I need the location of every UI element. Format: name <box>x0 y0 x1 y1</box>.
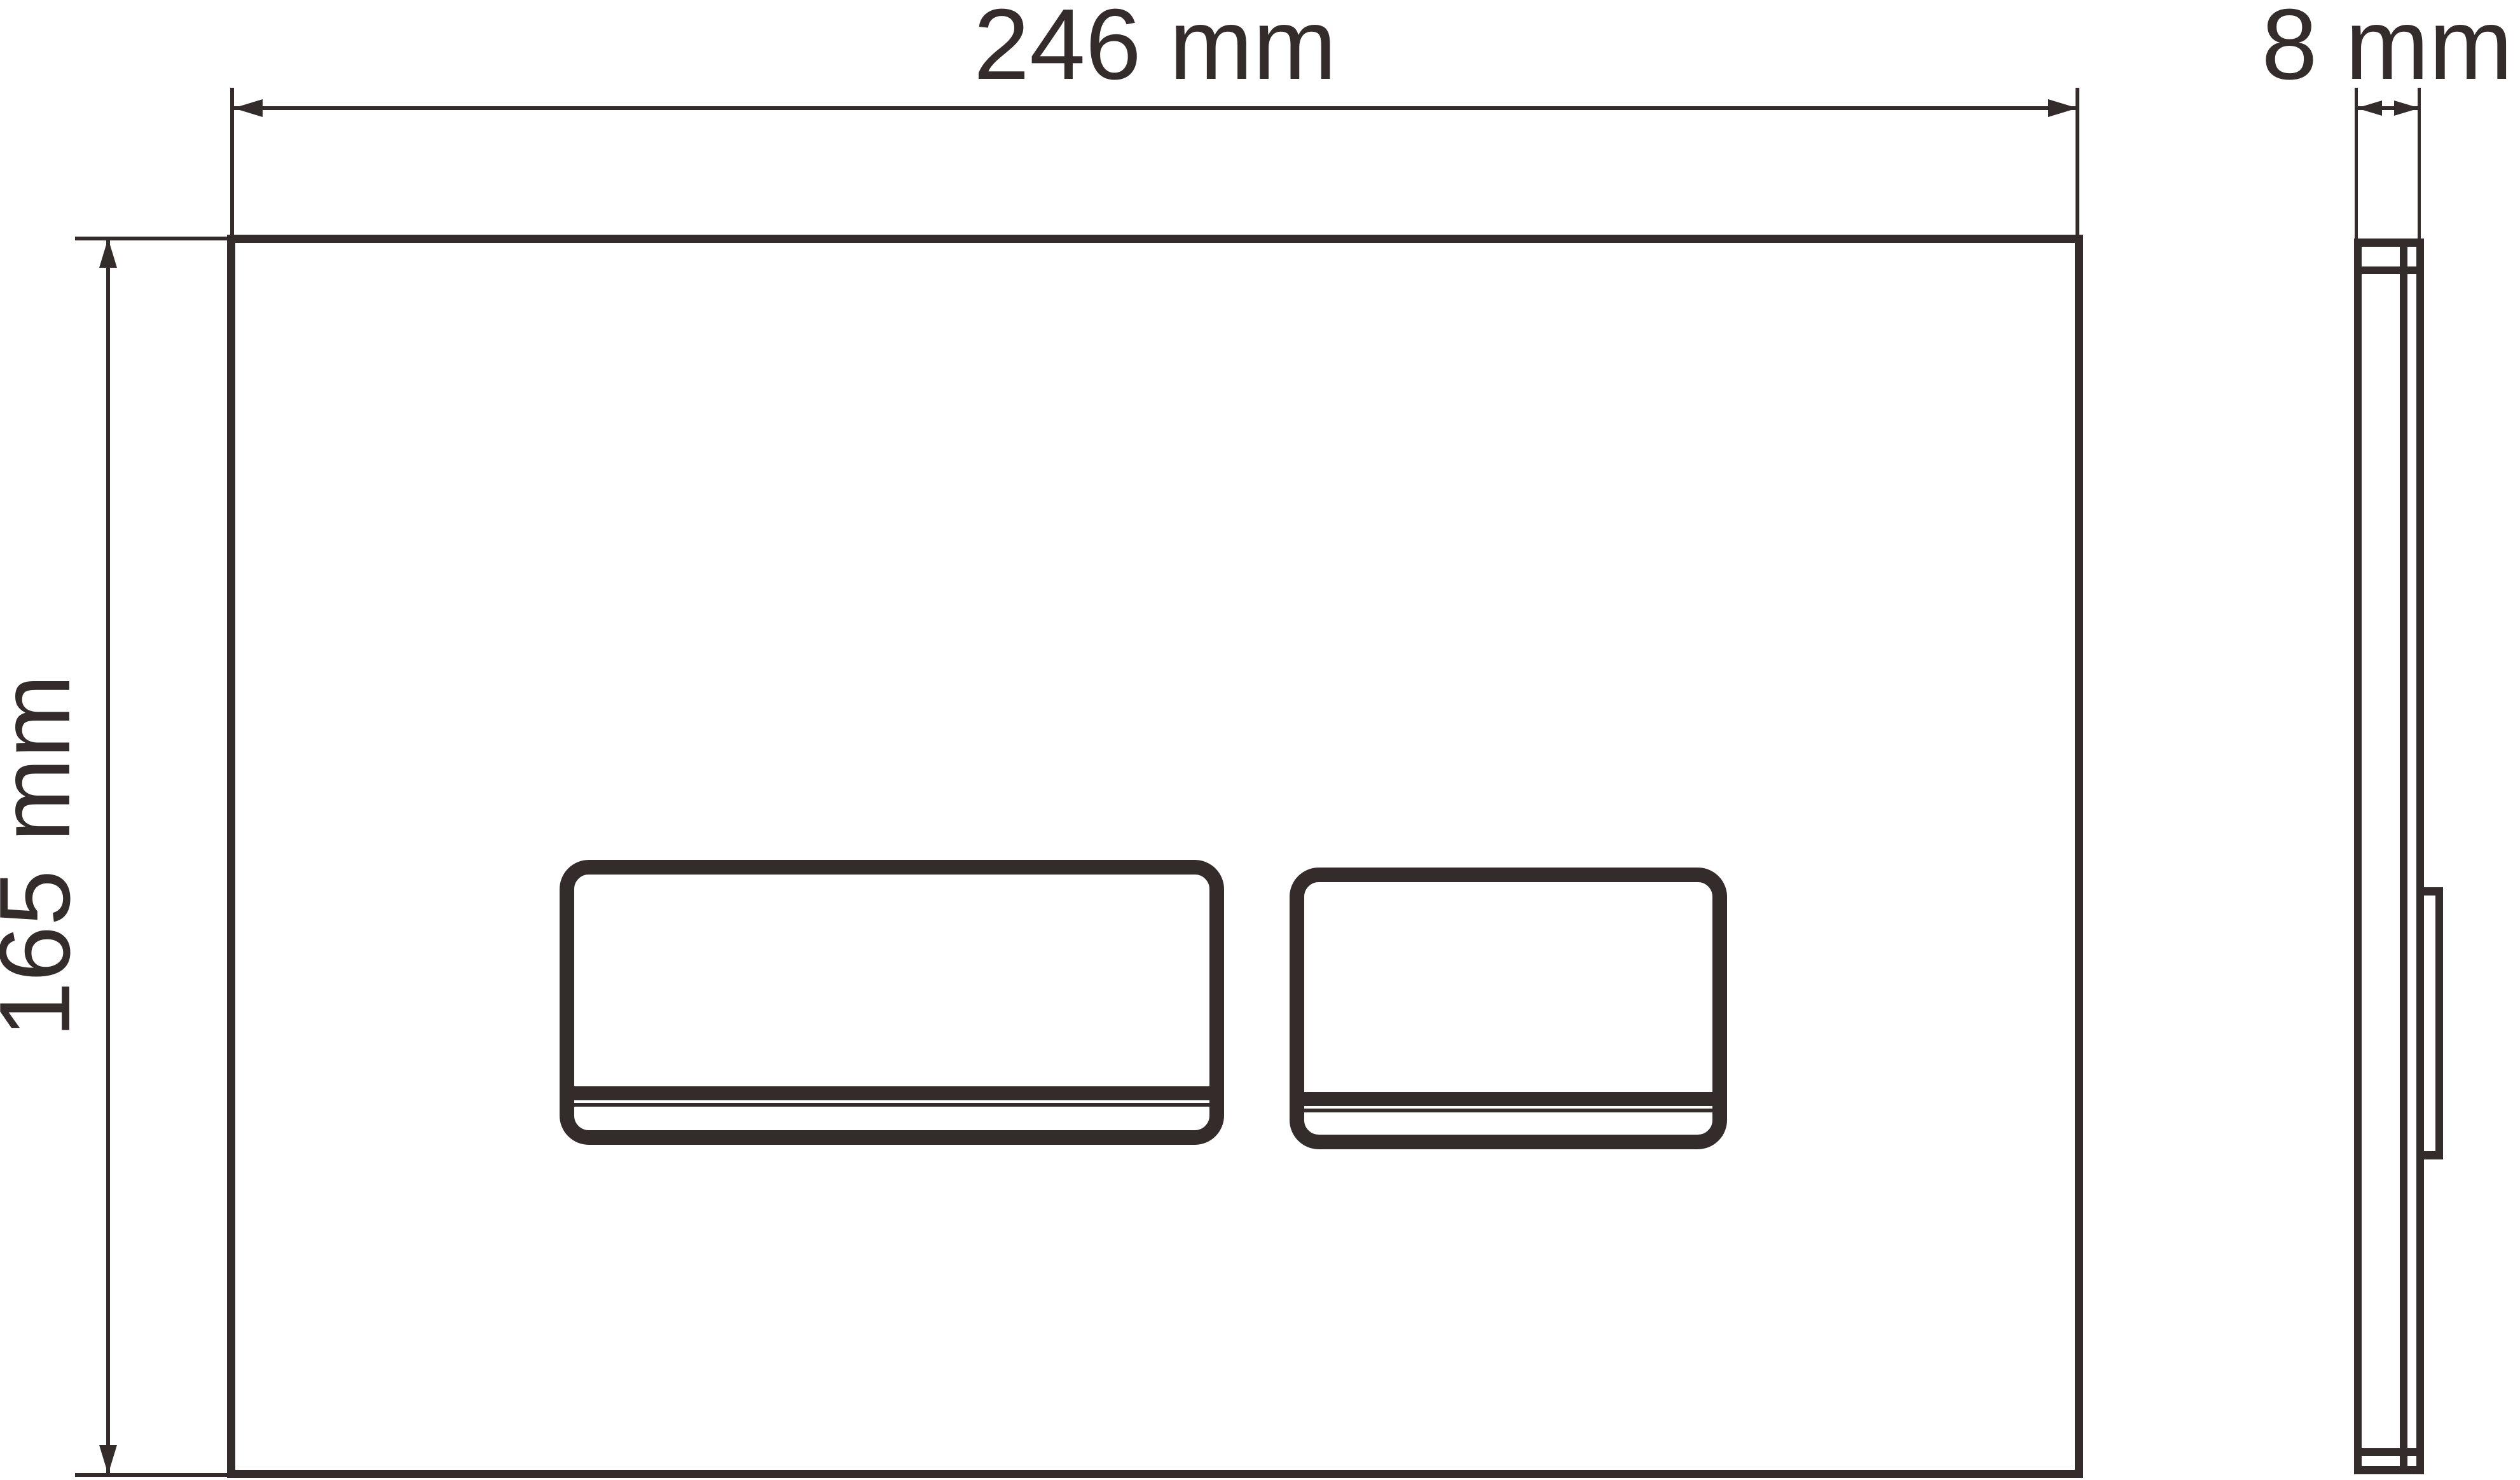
button-bottom-lip-line <box>574 1103 1209 1107</box>
button-bottom-band <box>574 1086 1209 1100</box>
arrow-right-icon <box>2048 99 2077 117</box>
side-view-inner-bottom-line <box>2362 1448 2416 1456</box>
height-dimension-label: 165 mm <box>0 633 86 1079</box>
width-dimension-line <box>233 106 2077 110</box>
depth-dimension-label: 8 mm <box>2259 0 2515 95</box>
side-view-inner-panel-line <box>2400 244 2407 1469</box>
flush-plate-outline <box>227 235 2083 1478</box>
button-bottom-band <box>1304 1092 1712 1106</box>
arrow-left-icon <box>233 99 263 117</box>
side-view-top-edge <box>2354 239 2424 247</box>
height-dimension-line <box>106 239 110 1474</box>
side-view-bottom-edge <box>2354 1466 2424 1474</box>
arrow-down-icon <box>99 1445 117 1474</box>
flush-button-small <box>1290 868 1727 1149</box>
side-view-mounting-clip <box>2420 887 2443 1159</box>
width-dimension-label: 246 mm <box>227 0 2083 95</box>
flush-button-large <box>560 860 1224 1145</box>
technical-drawing-canvas: 246 mm 165 mm 8 mm <box>0 0 2520 1480</box>
height-extension-line-bottom <box>75 1473 231 1477</box>
height-extension-line-top <box>75 237 231 240</box>
arrow-up-icon <box>99 239 117 268</box>
side-view-inner-top-line <box>2362 266 2416 274</box>
side-view-front-edge <box>2354 239 2362 1474</box>
arrow-left-small-icon <box>2357 100 2382 116</box>
arrow-right-small-icon <box>2394 100 2420 116</box>
button-bottom-lip-line <box>1304 1109 1712 1112</box>
side-view-back-edge <box>2416 239 2424 1474</box>
